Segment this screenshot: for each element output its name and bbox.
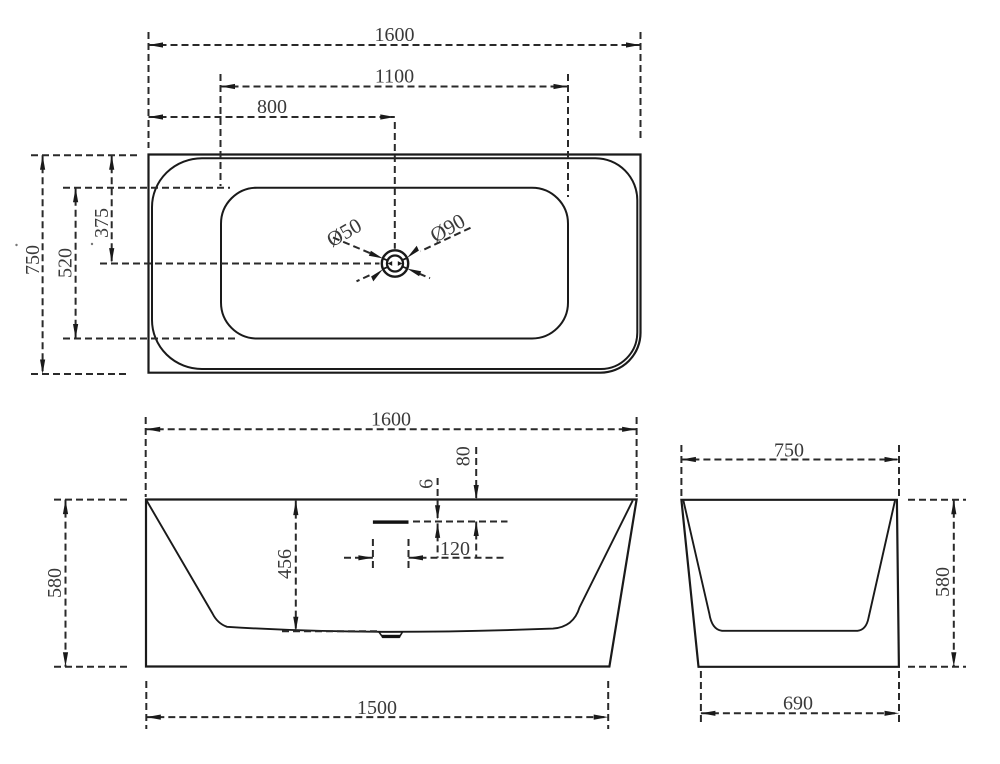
svg-text:580: 580: [44, 568, 66, 598]
svg-text:120: 120: [440, 538, 470, 560]
svg-text:1500: 1500: [357, 697, 397, 719]
svg-text:Ø50: Ø50: [322, 213, 365, 252]
svg-text:1600: 1600: [375, 24, 415, 46]
svg-text:1100: 1100: [375, 66, 414, 88]
svg-text:520: 520: [55, 248, 77, 278]
svg-text:Ø90: Ø90: [426, 209, 469, 248]
svg-text:580: 580: [932, 567, 954, 597]
svg-text:456: 456: [274, 549, 296, 579]
svg-text:375: 375: [91, 208, 113, 238]
svg-text:80: 80: [452, 446, 474, 466]
svg-text:1600: 1600: [371, 409, 411, 431]
svg-text:750: 750: [22, 245, 44, 275]
svg-text:800: 800: [257, 96, 287, 118]
svg-text:690: 690: [783, 692, 813, 714]
svg-text:750: 750: [774, 440, 804, 462]
svg-text:6: 6: [415, 479, 437, 489]
